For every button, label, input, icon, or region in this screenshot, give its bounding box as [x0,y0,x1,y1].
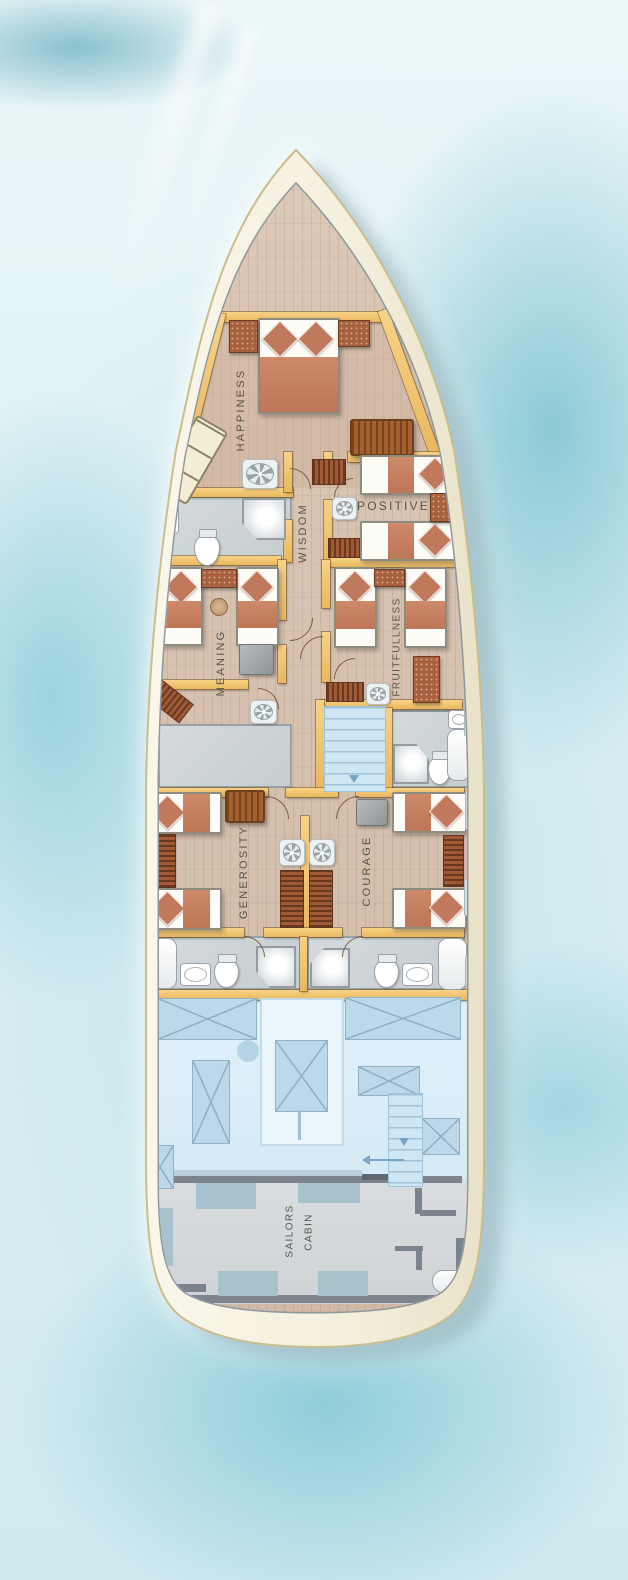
pillow [429,794,464,829]
wall [278,560,286,620]
wall [264,928,342,937]
cabin-label-sailors-line1: SAILORS [285,1204,296,1257]
wall-gray [416,1248,422,1270]
pillow [298,321,335,358]
engine-crate [192,1060,230,1144]
cabin-label-meaning: MEANING [215,630,227,697]
cabin-label-happiness: HAPPINESS [235,369,247,452]
twin-bed [392,792,467,833]
crew-berth [218,1271,278,1296]
locker [309,870,333,928]
blanket [183,794,210,832]
threshold [362,1174,388,1180]
cabin-label-courage: COURAGE [361,835,373,906]
engine-hatch [237,1040,259,1062]
nightstand [201,569,237,588]
radiator [443,835,464,887]
blanket [183,890,210,928]
deck-plan-scene: HAPPINESS WISDOM POSITIVE [0,0,628,1580]
wall [300,937,307,991]
engine-crate [358,1066,420,1096]
cabinet [356,799,388,826]
coffee-table [350,419,414,456]
fan-unit [279,839,305,866]
nightstand [338,320,370,347]
wall [316,700,324,790]
engine-crate [158,998,257,1040]
vent-grille [326,682,364,702]
pillow [240,570,274,604]
stool [210,598,228,616]
corridor-label-wisdom: WISDOM [297,503,309,563]
sink [402,963,433,986]
fan-unit [332,497,357,520]
side-table [225,790,265,823]
blanket [260,357,338,412]
pillow [429,890,464,925]
twin-bed [392,888,467,929]
twin-bed [404,567,447,648]
double-bed [258,318,340,414]
cabinet-tall [413,656,440,703]
twin-bed [236,567,279,646]
sink [180,963,211,986]
fan-icon [370,687,386,701]
cabin-label-fruitfullness: FRUITFULLNESS [392,597,403,696]
wall-gray [420,1210,456,1216]
wall [322,560,330,608]
pillow [262,321,299,358]
blanket [336,601,375,629]
pillow [338,570,372,604]
cabin-label-positive: POSITIVE [357,499,430,513]
blanket [406,601,445,629]
crew-berth [196,1183,256,1209]
cabin-label-generosity: GENEROSITY [238,825,250,919]
stairs-direction-arrow [349,775,359,783]
exit-path-line [370,1159,404,1161]
bathroom-floor [158,724,292,788]
engine-crate [345,997,461,1040]
fan-icon [313,843,331,862]
engine-crate [275,1040,328,1112]
cabin-label-sailors-line2: CABIN [304,1213,315,1251]
shower-tray [438,938,467,990]
blanket [405,794,431,831]
nightstand [229,320,258,353]
engine-unit-stem [298,1110,301,1140]
wall [362,928,464,937]
wall [278,645,286,683]
pillow [408,570,442,604]
crew-berth [318,1271,368,1296]
locker [280,870,304,928]
twin-bed [360,521,456,561]
blanket [388,523,414,559]
exit-direction-arrow [362,1155,370,1165]
crew-berth [298,1183,360,1203]
pillow [418,523,452,557]
fan-icon [283,843,301,862]
wall-gray [160,1176,388,1183]
cabinet [239,644,274,675]
fan-unit [366,683,390,705]
fan-icon [336,501,353,516]
blanket [238,601,277,628]
blanket [388,457,414,493]
wall [322,632,330,682]
wall-gray [420,1176,462,1183]
blanket [405,890,431,927]
engine-crate [422,1118,460,1155]
fan-unit [309,839,335,866]
stairs-direction-arrow [399,1138,409,1146]
fan-unit [242,459,278,489]
fan-icon [246,463,274,485]
nightstand [374,569,405,587]
vent-grille [328,538,360,558]
twin-bed [334,567,377,648]
